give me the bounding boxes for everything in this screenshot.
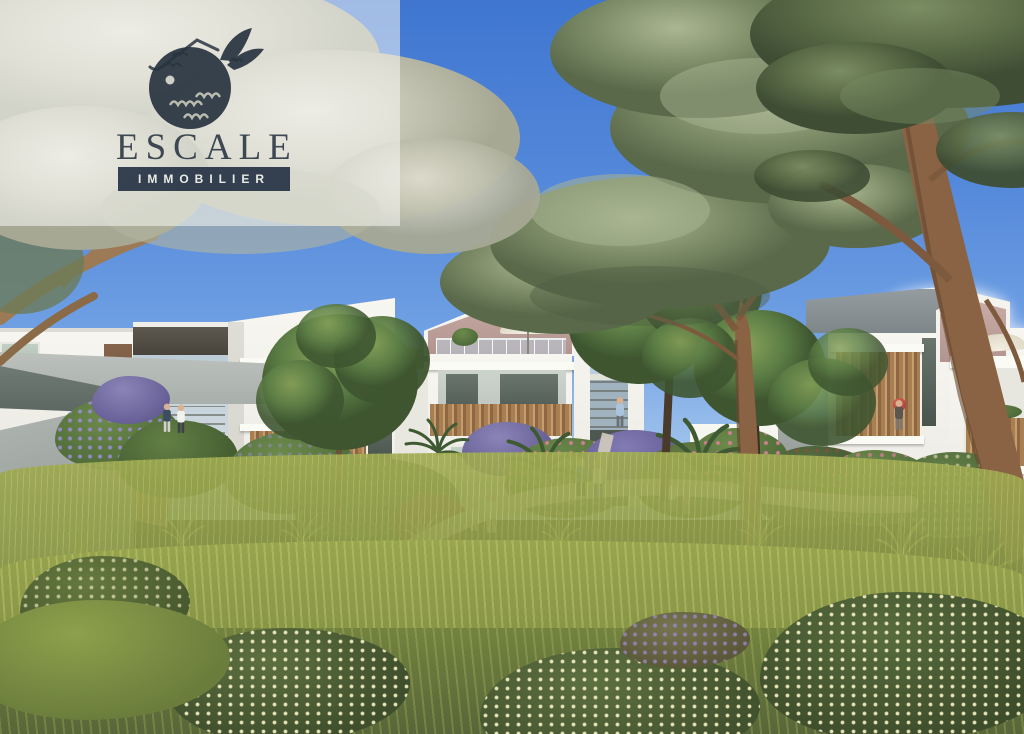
logo-banner: IMMOBILIER <box>118 167 290 191</box>
logo-wordmark: ESCALE <box>116 126 292 169</box>
person-balcony-right <box>895 400 903 430</box>
logo-mark <box>0 0 400 226</box>
whale-eye <box>166 76 175 85</box>
person-stair-landing <box>616 397 624 427</box>
palm-tree <box>406 420 468 456</box>
person-bridge-2 <box>177 405 185 433</box>
architectural-rendering-scene: ESCALE IMMOBILIER <box>0 0 1024 734</box>
person-bridge-1 <box>163 404 171 432</box>
